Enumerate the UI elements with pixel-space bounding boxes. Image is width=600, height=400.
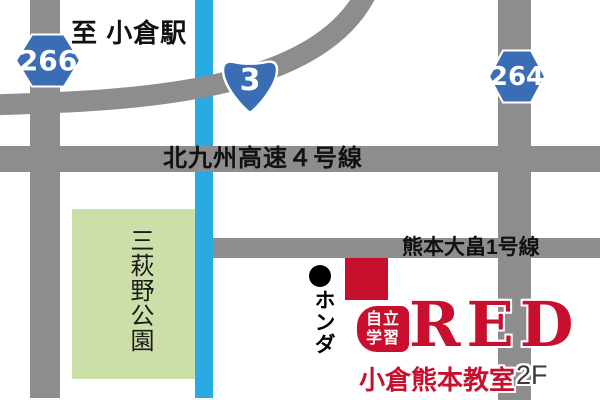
route-shield-264-number: 264 [490,62,544,92]
to-kokura-station-label: 至 小倉駅 [71,13,187,50]
honda-label: ホンダ [308,289,338,355]
honda-dot-icon [309,265,331,287]
route-shield-3-number: 3 [240,63,261,98]
floor-label: 2F [516,360,548,391]
expressway-label: 北九州高速４号線 [163,146,363,172]
route-shield-264: 264 [488,49,546,104]
kumamoto-road-label: 熊本大畠1号線 [402,236,540,260]
route-shield-3: 3 [218,56,282,116]
park-label: 三萩野公園 [122,228,157,353]
logo-badge-line2: 学習 [366,329,400,348]
brand-logo-red: RED [409,297,580,353]
logo-badge-line1: 自立 [366,310,400,329]
logo-badge: 自立 学習 [357,306,409,352]
destination-marker [345,258,388,300]
route-shield-266-number: 266 [19,44,77,77]
classroom-name-label: 小倉熊本教室 [359,360,515,397]
route-shield-266: 266 [15,33,81,88]
blue-road-vertical [195,0,213,398]
